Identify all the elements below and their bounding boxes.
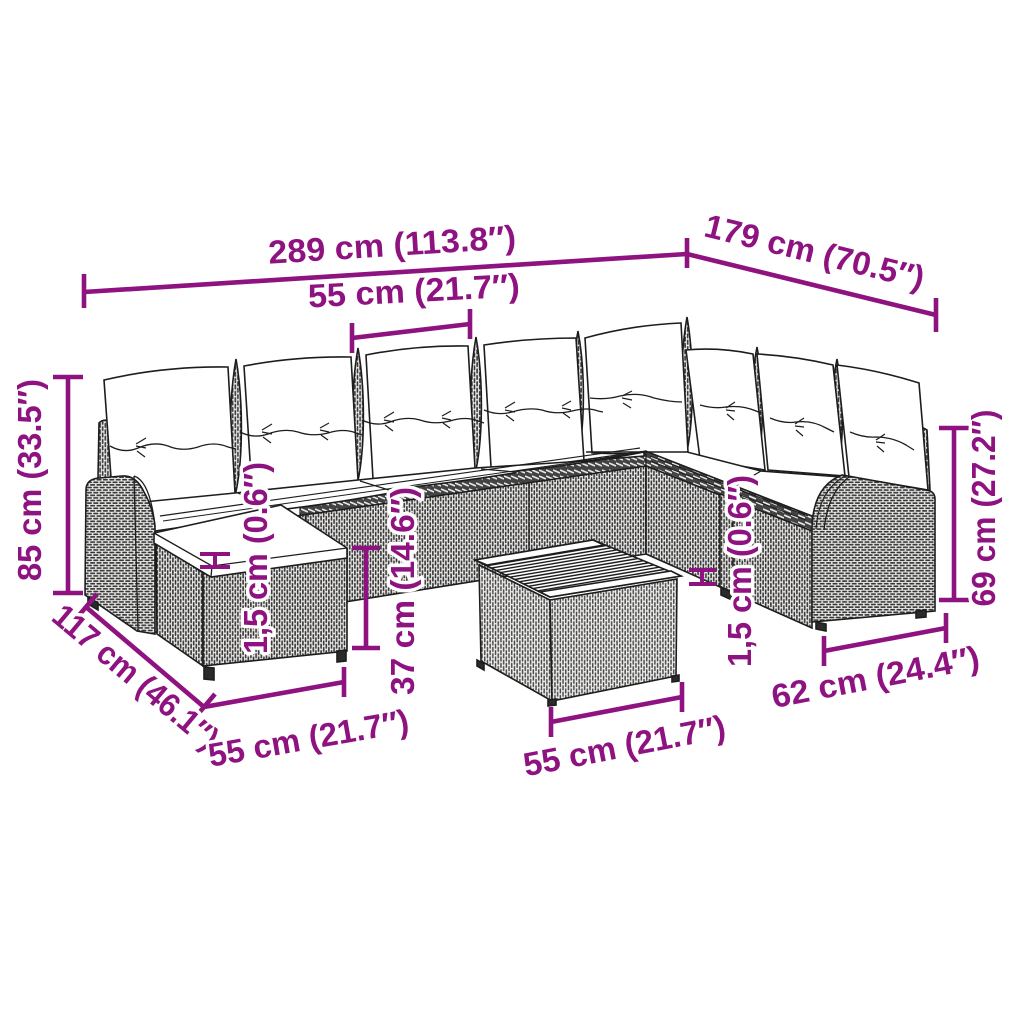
svg-text:37 cm (14.6″): 37 cm (14.6″): [384, 487, 421, 695]
svg-text:69 cm (27.2″): 69 cm (27.2″): [965, 410, 1002, 607]
svg-text:1,5 cm (0.6″): 1,5 cm (0.6″): [721, 475, 758, 667]
svg-text:85 cm (33.5″): 85 cm (33.5″): [11, 379, 48, 581]
svg-text:1,5 cm (0.6″): 1,5 cm (0.6″): [237, 462, 274, 654]
